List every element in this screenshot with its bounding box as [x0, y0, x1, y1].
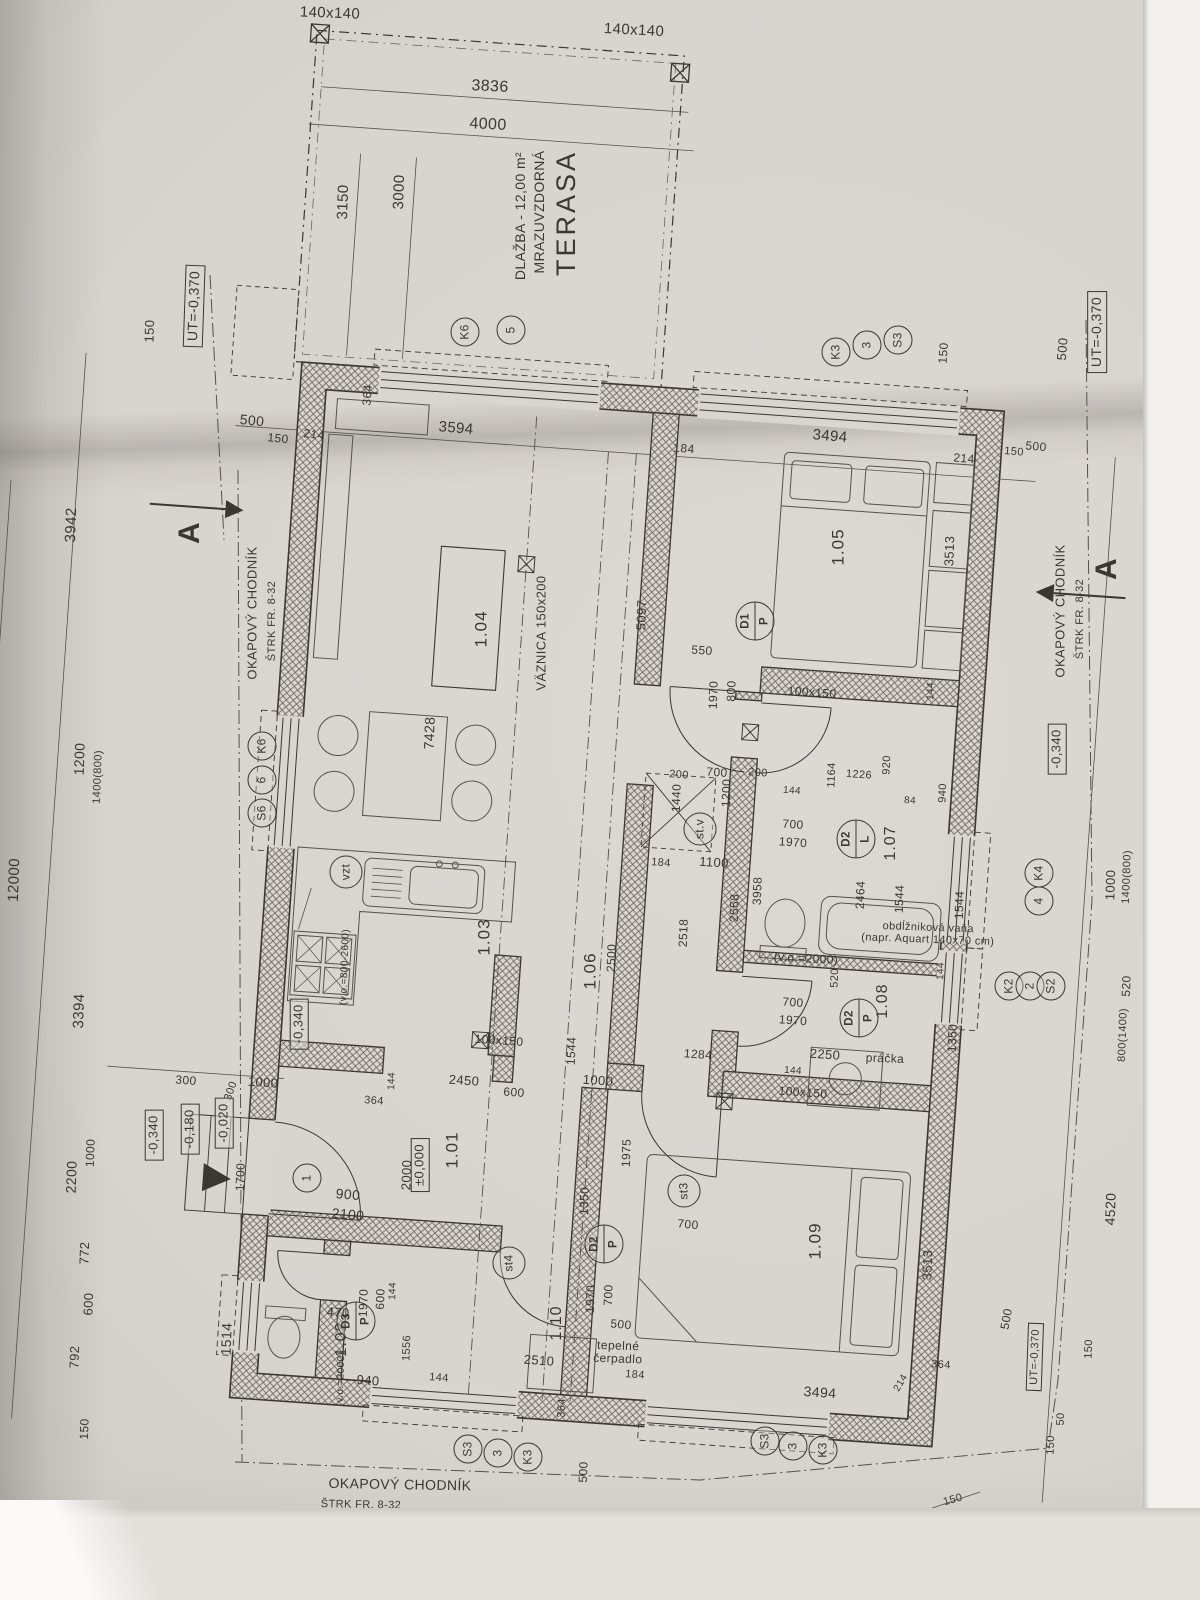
dim-label: 3513	[942, 535, 958, 566]
door-marker: D2P	[840, 999, 879, 1038]
wall-marker: st4	[493, 1247, 526, 1280]
purlin-label: VÄZNICA 150x200	[535, 575, 550, 690]
level-label: UT=-0,370	[1026, 1323, 1045, 1391]
dim-label: 144	[925, 682, 937, 700]
dim-label: 700	[782, 996, 804, 1011]
bathtub-note: obdĺžniková vaňa (napr. Aquart 140x70 cm…	[861, 919, 995, 948]
dim-label: 3836	[471, 77, 509, 97]
ceiling-hatch-marker: st.v	[684, 813, 717, 846]
room-number: 1.06	[580, 952, 599, 989]
dim-label: 1970	[778, 1013, 807, 1028]
dim-label: 2200	[64, 1160, 81, 1193]
post-size-label: 140x140	[603, 21, 664, 41]
dim-label: 520	[829, 968, 842, 988]
dim-label: 200	[669, 768, 689, 782]
dim-label: 500	[1025, 439, 1047, 454]
dim-label: 144	[784, 1065, 803, 1077]
dim-label: (v.o.=2000)	[773, 951, 838, 968]
dim-label: 144	[387, 1282, 399, 1300]
post-size-label: 140x140	[300, 5, 361, 24]
floor-plan-photo: 140x140140x1403836400030003150TERASAMRAZ…	[0, 0, 1200, 1600]
window-marker: S6	[248, 799, 277, 828]
dim-label: 920	[881, 755, 894, 775]
dim-label: 1544	[893, 885, 907, 914]
walkway-label: OKAPOVÝ CHODNÍK	[328, 1476, 471, 1494]
vent-marker: vzt	[330, 856, 363, 889]
window-marker: S3	[884, 326, 913, 355]
dim-label: 1400(800)	[1120, 850, 1134, 904]
dim-label: 1164	[825, 762, 838, 788]
dim-label: 2500	[605, 944, 619, 973]
dim-label: 5097	[634, 599, 650, 630]
dim-label: 4520	[1103, 1192, 1120, 1225]
dim-label: 184	[673, 441, 695, 456]
dim-label: 3000	[391, 174, 409, 210]
dim-label: 12000	[6, 858, 24, 902]
dim-label: 600	[503, 1086, 525, 1101]
room-number: 1.05	[828, 528, 847, 565]
dim-label: 3594	[438, 419, 474, 439]
room-number: 1.09	[805, 1222, 824, 1259]
dim-label: 200	[748, 766, 768, 780]
window-marker: K3	[809, 1436, 838, 1465]
dim-label: 184	[625, 1368, 645, 1382]
dim-label: 1200	[72, 742, 89, 775]
dim-label: 940	[937, 783, 950, 803]
level-label: UT=-0,370	[1087, 291, 1107, 373]
dim-label: 900	[335, 1186, 361, 1204]
dim-label: 2250	[809, 1047, 840, 1064]
dim-label: 3942	[63, 507, 81, 543]
dim-label: 1970	[584, 1285, 598, 1314]
dim-label: 364	[556, 1398, 569, 1418]
level-label: -0,020	[215, 1097, 234, 1148]
window-marker: K4	[1025, 859, 1054, 888]
dim-label: 500	[999, 1307, 1016, 1330]
level-label: -0,340	[1048, 723, 1067, 774]
dim-label: 214	[953, 451, 975, 466]
dim-label: 364	[364, 1094, 384, 1108]
dim-label: 1440	[670, 784, 684, 813]
dim-label: 1000	[84, 1139, 98, 1168]
dim-label: 800(1400)	[1116, 1008, 1130, 1062]
dim-label: 2450	[448, 1073, 479, 1090]
wall-marker: st3	[668, 1175, 701, 1208]
window-marker: 3	[779, 1432, 808, 1461]
dim-label: 600	[374, 1288, 388, 1310]
level-label: -0,340	[145, 1109, 164, 1160]
dim-label: 1514	[219, 1322, 236, 1355]
dim-label: 214	[303, 427, 326, 443]
dim-label: 50	[1055, 1412, 1068, 1425]
dim-label: 100x150	[474, 1033, 524, 1050]
room-number: 1.01	[442, 1131, 461, 1168]
dim-label: 500	[1055, 337, 1071, 361]
dim-label: 550	[691, 644, 713, 659]
window-marker: K3	[514, 1443, 543, 1472]
dim-label: 792	[67, 1345, 82, 1368]
dim-label: 150	[937, 342, 952, 364]
walkway-label: ŠTRK FR. 8-32	[1074, 579, 1086, 659]
window-marker: 5	[497, 316, 526, 345]
paper-edge-right	[1143, 0, 1200, 1600]
dim-label: 2464	[854, 881, 868, 910]
dim-label: 364	[361, 384, 376, 406]
dim-label: 364	[931, 1358, 951, 1372]
dim-label: (v.o.=2000)	[334, 1352, 347, 1407]
dim-label: 3958	[751, 877, 765, 906]
dim-label: 84	[904, 795, 917, 807]
dim-label: 600	[81, 1292, 96, 1315]
dim-label: 184	[651, 856, 671, 870]
table-surface	[0, 1500, 260, 1600]
window-marker: K3	[822, 338, 851, 367]
dim-label: 150	[942, 1491, 964, 1508]
dim-label: 1544	[953, 891, 967, 920]
dim-label: 300	[175, 1074, 197, 1089]
annotation-layer: 140x140140x1403836400030003150TERASAMRAZ…	[0, 0, 1200, 1600]
room-number: 1.07	[882, 825, 900, 860]
window-marker: S3	[751, 1427, 780, 1456]
washer-label: práčka	[866, 1052, 905, 1067]
section-mark: A	[1090, 558, 1124, 580]
door-marker: D2P	[585, 1225, 624, 1264]
terrace-note: MRAZUVZDORNÁ	[532, 150, 548, 273]
dim-label: 3494	[812, 427, 848, 447]
section-mark: A	[173, 522, 207, 544]
dim-label: 3494	[803, 1384, 837, 1402]
window-marker: S3	[454, 1435, 483, 1464]
dim-label: 1000	[582, 1073, 613, 1090]
dim-label: 1975	[620, 1139, 634, 1168]
door-marker: D1P	[736, 602, 775, 641]
dim-label: 1284	[683, 1047, 712, 1062]
dim-label: 2000	[399, 1159, 415, 1190]
dim-label: 3513	[920, 1249, 936, 1280]
dim-label: 150	[142, 319, 157, 342]
dim-label: 4000	[469, 115, 507, 135]
dim-label: 500	[239, 412, 265, 430]
dim-label: 500	[577, 1461, 591, 1483]
heat-pump-label: tepelné čerpadlo	[593, 1339, 643, 1368]
terrace-note: DLAŽBA - 12,00 m²	[513, 152, 529, 280]
dim-label: 700	[602, 1284, 616, 1306]
window-marker: K6	[248, 732, 277, 761]
room-number: 1.04	[471, 610, 490, 647]
dim-label: 1970	[357, 1289, 371, 1318]
dim-label: (v.o.=800-2600)	[338, 929, 352, 1005]
dim-label: 1000	[1103, 869, 1119, 900]
room-number: 1.10	[548, 1305, 566, 1340]
dim-label: 1350	[578, 1187, 592, 1216]
door-marker: D2L	[837, 820, 876, 859]
dim-label: 2510	[523, 1353, 554, 1370]
dim-label: 520	[1120, 975, 1134, 997]
dim-label: 100x150	[778, 1085, 828, 1102]
walkway-label: OKAPOVÝ CHODNÍK	[1054, 544, 1069, 677]
dim-label: 1400(800)	[91, 750, 105, 804]
room-number: 1.03	[474, 918, 493, 955]
window-marker: 3	[484, 1439, 513, 1468]
dim-label: 150	[1045, 1435, 1058, 1455]
entrance-marker: 1	[293, 1164, 322, 1193]
dim-label: 144	[386, 1072, 398, 1090]
dim-label: 3150	[335, 184, 353, 220]
dim-label: 940	[356, 1373, 380, 1389]
level-label: -0,340	[290, 998, 309, 1049]
dim-label: 470	[326, 1305, 350, 1321]
walkway-label: OKAPOVÝ CHODNÍK	[246, 546, 261, 679]
dim-label: 150	[1004, 445, 1025, 459]
dim-label: 144	[429, 1371, 449, 1385]
terrace-title: TERASA	[551, 150, 581, 276]
dim-label: 500	[610, 1317, 632, 1332]
dim-label: 1700	[234, 1163, 248, 1192]
dim-label: 150	[78, 1418, 92, 1440]
dim-label: 1544	[565, 1037, 579, 1066]
window-marker: 6	[248, 766, 277, 795]
dim-label: 2518	[677, 919, 691, 948]
window-marker: S2	[1037, 972, 1066, 1001]
dim-label: 772	[77, 1241, 92, 1264]
dim-label: 1350	[946, 1024, 960, 1053]
window-marker: 4	[1025, 887, 1054, 916]
dim-label: 144	[935, 962, 947, 980]
dim-label: 1200	[720, 779, 734, 808]
dim-label: 700	[782, 818, 804, 833]
dim-label: 7428	[422, 716, 439, 749]
dim-label: 150	[267, 431, 290, 447]
dim-label: 2558	[728, 894, 742, 923]
level-label: -0,180	[181, 1103, 200, 1154]
dim-label: 700	[677, 1217, 699, 1232]
dim-label: 1970	[778, 835, 807, 850]
dim-label: 3394	[71, 993, 89, 1029]
walkway-label: ŠTRK FR. 8-32	[266, 581, 278, 661]
dim-label: 100x150	[787, 685, 837, 702]
dim-label: 800	[725, 680, 739, 702]
window-marker: 3	[853, 331, 882, 360]
dim-label: 1970	[707, 681, 721, 710]
dim-label: 150	[1083, 1339, 1096, 1359]
level-label: UT=-0,370	[183, 265, 206, 348]
window-marker: K6	[451, 318, 480, 347]
dim-label: 1556	[400, 1335, 413, 1361]
dim-label: 1000	[247, 1075, 278, 1092]
dim-label: 1226	[846, 768, 873, 782]
dim-label: 144	[783, 785, 802, 797]
dim-label: 1100	[699, 855, 730, 872]
dim-label: 214	[892, 1372, 911, 1393]
dim-label: 2100	[331, 1206, 365, 1224]
